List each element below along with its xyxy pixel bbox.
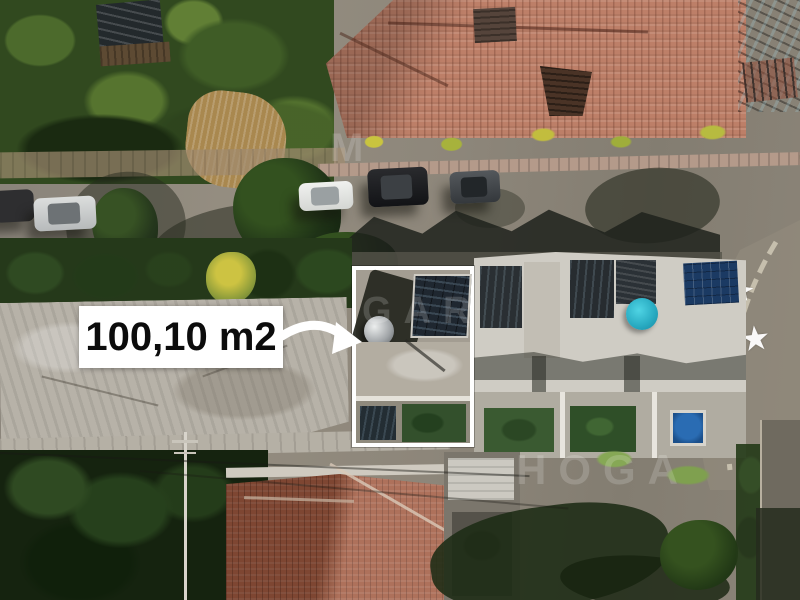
white-wall	[356, 396, 470, 401]
utility-pole-crossarm	[172, 440, 198, 443]
dark-roof-section	[570, 260, 614, 318]
glass-structure-frame	[742, 57, 798, 102]
concrete-patio	[356, 342, 470, 400]
green-yard	[402, 404, 466, 442]
parked-suv-black	[367, 166, 429, 207]
annotation-arrow	[278, 314, 366, 362]
dark-panel-roof	[410, 274, 471, 338]
roof-chimney	[473, 7, 517, 43]
hedge-row	[0, 238, 352, 308]
parked-car-gray	[449, 170, 501, 205]
townhouse-row	[474, 252, 746, 458]
car-windows	[381, 174, 413, 200]
turquoise-water-tank	[626, 298, 658, 330]
street-shadow	[756, 508, 800, 600]
parked-car-dark	[0, 189, 35, 223]
area-annotation-label: 100,10 m2	[79, 306, 283, 368]
blue-solar-panel	[683, 261, 739, 306]
car-windows	[460, 176, 487, 198]
car-windows	[310, 186, 339, 205]
aerial-photo: ★ ★ ★	[0, 0, 800, 600]
dark-panel	[360, 406, 396, 440]
shed-roof	[448, 458, 514, 500]
utility-pole-crossarm	[174, 452, 196, 454]
parked-car-silver	[33, 195, 97, 231]
utility-pole	[184, 432, 187, 600]
car-windows	[47, 202, 80, 225]
highlighted-property-outline	[352, 266, 474, 447]
dark-roof-section	[480, 266, 522, 328]
dark-roof-section	[616, 260, 656, 304]
wall-shadow-band	[474, 352, 746, 380]
parked-car-white	[298, 181, 353, 212]
roof-gap	[524, 262, 560, 358]
